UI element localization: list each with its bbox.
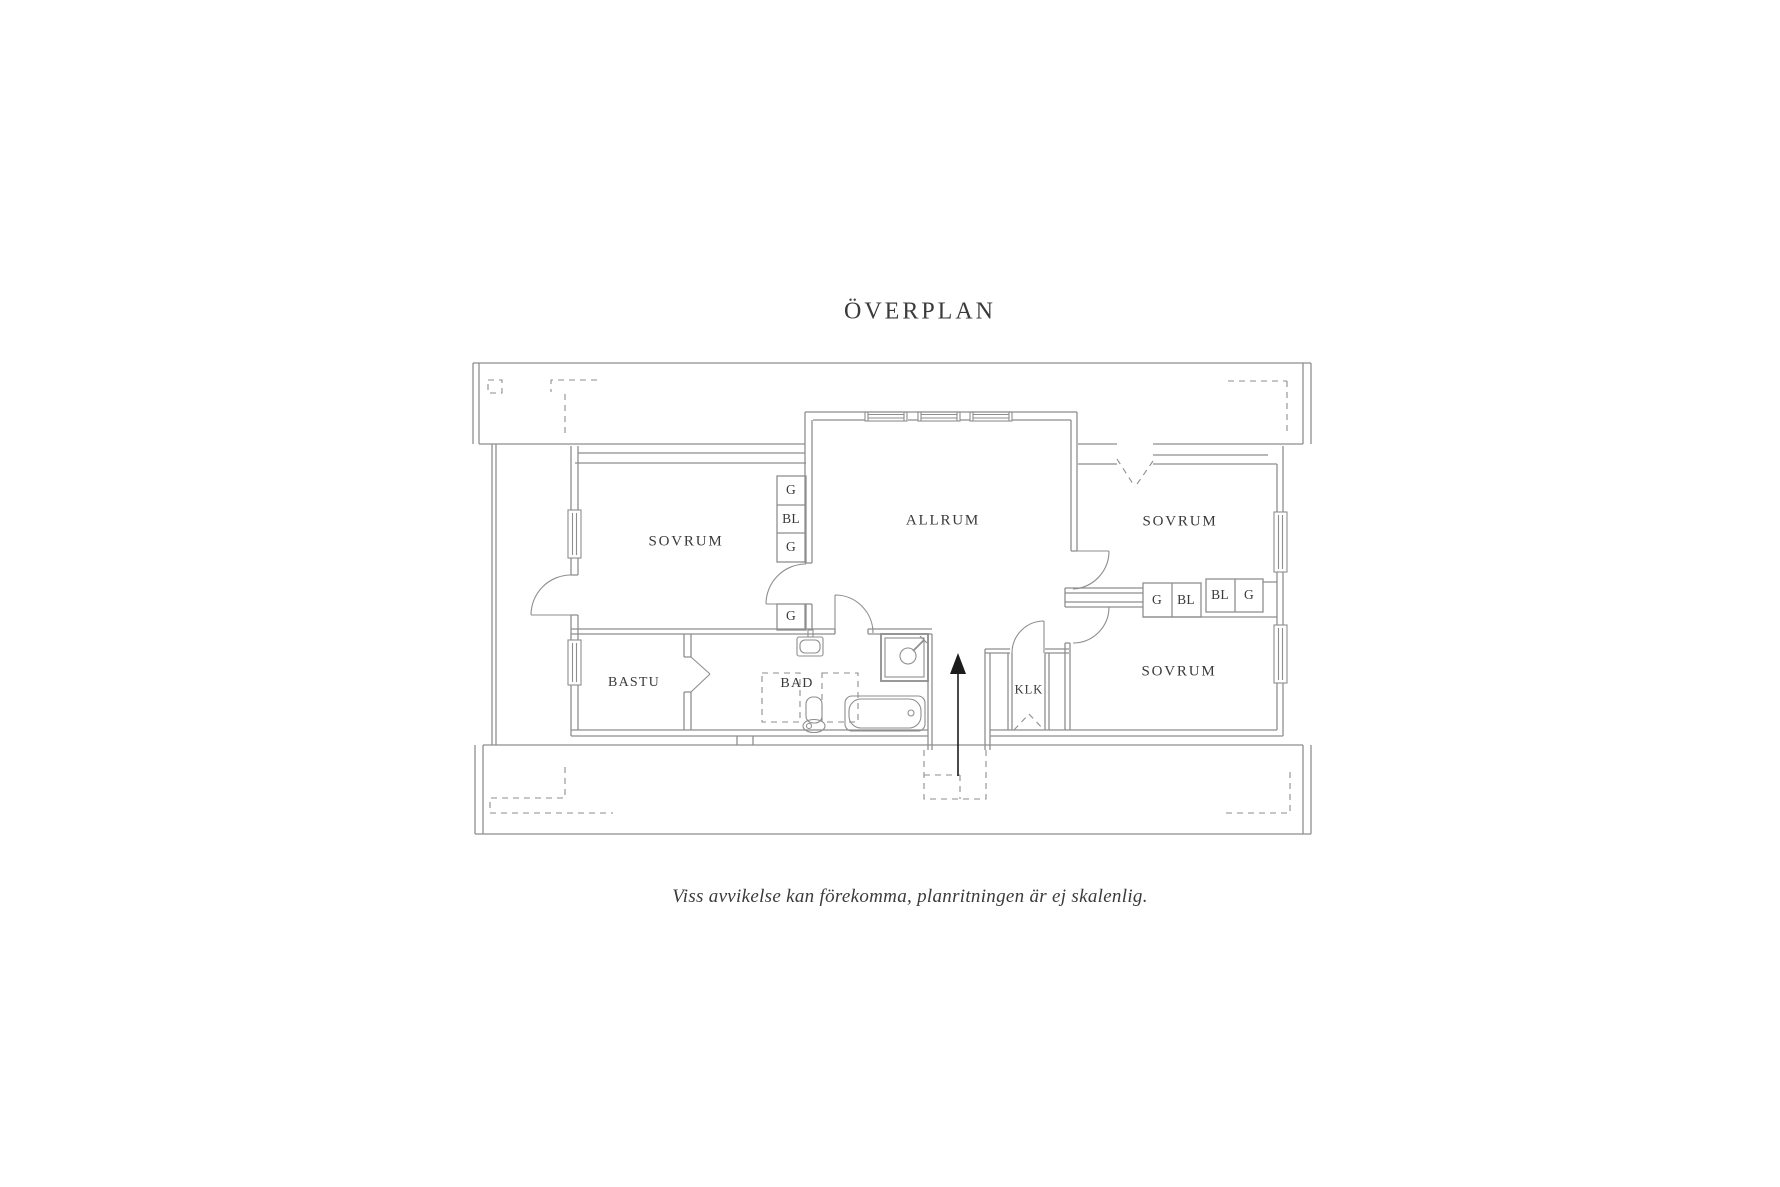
closet-label-g-2: G — [786, 539, 796, 555]
room-label-sovrum-top: SOVRUM — [1143, 514, 1218, 531]
closet-label-g-4: G — [1152, 592, 1162, 608]
room-label-bastu: BASTU — [608, 675, 660, 691]
closet-label-g-3: G — [786, 608, 796, 624]
dashed-door-top-sovrum — [1117, 459, 1153, 487]
exterior-door-west — [531, 575, 571, 615]
door-klk — [1012, 621, 1044, 653]
closet-label-bl-3: BL — [1211, 587, 1229, 603]
closet-label-bl-2: BL — [1177, 592, 1195, 608]
floorplan-drawing — [0, 0, 1780, 1187]
exterior-walls — [492, 444, 1283, 745]
stairs-up-arrow — [950, 653, 966, 776]
door-bad — [835, 595, 873, 633]
fixtures — [762, 630, 966, 776]
room-label-allrum: ALLRUM — [906, 513, 980, 530]
roof-dashed-outlines — [488, 380, 1287, 434]
room-label-bad: BAD — [780, 676, 813, 692]
room-label-sovrum-left: SOVRUM — [649, 534, 724, 551]
dashed-door-klk — [1014, 714, 1044, 730]
room-label-sovrum-bottom: SOVRUM — [1142, 664, 1217, 681]
disclaimer-text: Viss avvikelse kan förekomma, planritnin… — [672, 886, 1147, 908]
toilet — [803, 697, 825, 733]
door-top-right-sovrum — [1073, 551, 1109, 589]
page-title: ÖVERPLAN — [844, 299, 996, 326]
floorplan-page: ÖVERPLAN SOVRUM ALLRUM SOVRUM SOVRUM BAS… — [0, 0, 1780, 1187]
door-bastu — [691, 657, 710, 692]
bathtub — [845, 696, 925, 731]
window-bottom-right-sovrum — [1274, 625, 1287, 683]
window-left-sovrum — [568, 510, 581, 558]
window-top-right-sovrum — [1274, 512, 1287, 572]
allrum-window-band — [865, 412, 1012, 421]
room-label-klk: KLK — [1015, 683, 1044, 698]
bottom-roof-band — [475, 736, 1311, 834]
door-left-sovrum — [766, 564, 806, 604]
door-bottom-right-sovrum — [1073, 607, 1109, 643]
shower — [881, 634, 928, 681]
window-bastu — [568, 640, 581, 685]
closet-label-bl-1: BL — [782, 511, 800, 527]
closet-label-g-1: G — [786, 482, 796, 498]
closet-label-g-5: G — [1244, 587, 1254, 603]
top-roof-band — [473, 363, 1311, 444]
bottom-dashed-outlines — [490, 750, 1290, 813]
